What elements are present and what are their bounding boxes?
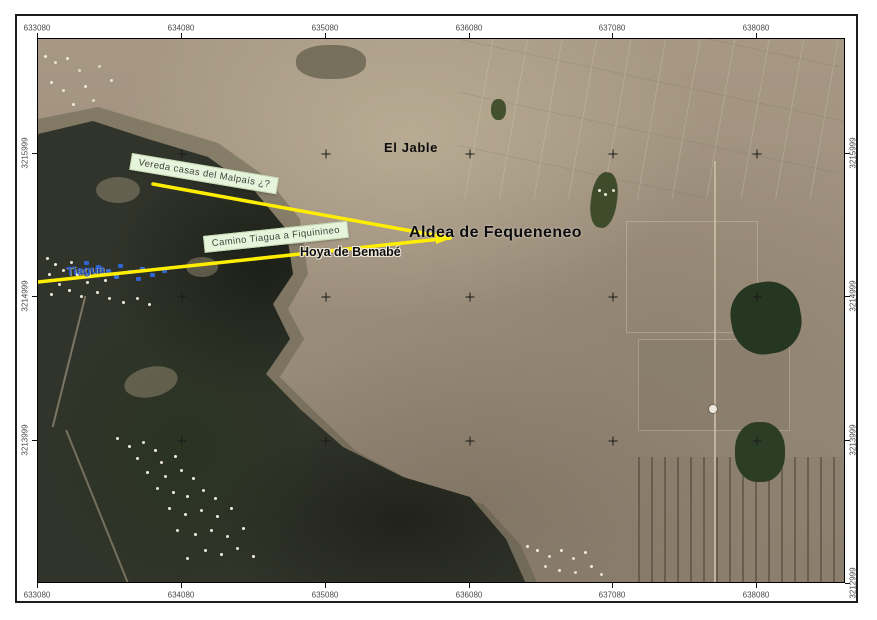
graticule-tick xyxy=(37,33,38,38)
graticule-tick xyxy=(325,33,326,38)
map-document: Vereda casas del Malpaís ¿? Camino Tiagu… xyxy=(0,0,877,620)
grid-cross-mark xyxy=(178,437,187,446)
place-label-tiagua[interactable]: Tiagua xyxy=(66,262,105,279)
grid-cross-mark xyxy=(322,437,331,446)
graticule-label-x: 634080 xyxy=(168,24,195,33)
graticule-tick xyxy=(756,33,757,38)
grid-cross-mark xyxy=(609,437,618,446)
grid-cross-mark xyxy=(466,437,475,446)
grid-cross-mark xyxy=(753,293,762,302)
graticule-label-x: 636080 xyxy=(456,591,483,600)
graticule-label-y: 3214999 xyxy=(21,280,30,311)
grid-cross-mark xyxy=(753,437,762,446)
graticule-label-y: 3212999 xyxy=(849,567,858,598)
grid-cross-mark xyxy=(609,150,618,159)
graticule-label-y: 3215999 xyxy=(21,137,30,168)
graticule-label-x: 633080 xyxy=(24,591,51,600)
graticule-label-y: 3213999 xyxy=(21,424,30,455)
graticule-tick xyxy=(32,296,37,297)
grid-cross-mark xyxy=(609,293,618,302)
graticule-label-x: 637080 xyxy=(599,24,626,33)
graticule-label-x: 635080 xyxy=(312,591,339,600)
graticule-label-x: 634080 xyxy=(168,591,195,600)
graticule-label-x: 637080 xyxy=(599,591,626,600)
grid-cross-mark xyxy=(466,150,475,159)
place-label-aldea-de-fequeneneo[interactable]: Aldea de Fequeneneo xyxy=(409,224,582,242)
graticule-label-y: 3213999 xyxy=(849,424,858,455)
grid-cross-mark xyxy=(322,150,331,159)
graticule-tick xyxy=(181,33,182,38)
graticule-tick xyxy=(325,583,326,588)
graticule-label-y: 3215999 xyxy=(849,137,858,168)
grid-cross-mark xyxy=(753,150,762,159)
grid-cross-mark xyxy=(178,293,187,302)
graticule-tick xyxy=(756,583,757,588)
graticule-label-x: 633080 xyxy=(24,24,51,33)
graticule-label-x: 635080 xyxy=(312,24,339,33)
graticule-tick xyxy=(469,33,470,38)
grid-cross-mark xyxy=(178,150,187,159)
graticule-label-y: 3214999 xyxy=(849,280,858,311)
place-label-hoya-de-bemabe[interactable]: Hoya de Bemabé xyxy=(300,245,401,259)
leader-lines-layer xyxy=(38,39,845,583)
graticule-label-x: 638080 xyxy=(743,591,770,600)
place-label-el-jable[interactable]: El Jable xyxy=(384,140,438,155)
graticule-tick xyxy=(612,583,613,588)
graticule-tick xyxy=(32,440,37,441)
graticule-tick xyxy=(181,583,182,588)
map-frame[interactable]: Vereda casas del Malpaís ¿? Camino Tiagu… xyxy=(37,38,845,583)
graticule-tick xyxy=(37,583,38,588)
grid-cross-mark xyxy=(466,293,475,302)
graticule-label-x: 638080 xyxy=(743,24,770,33)
graticule-tick xyxy=(469,583,470,588)
graticule-label-x: 636080 xyxy=(456,24,483,33)
graticule-tick xyxy=(612,33,613,38)
graticule-tick xyxy=(32,153,37,154)
grid-cross-mark xyxy=(322,293,331,302)
